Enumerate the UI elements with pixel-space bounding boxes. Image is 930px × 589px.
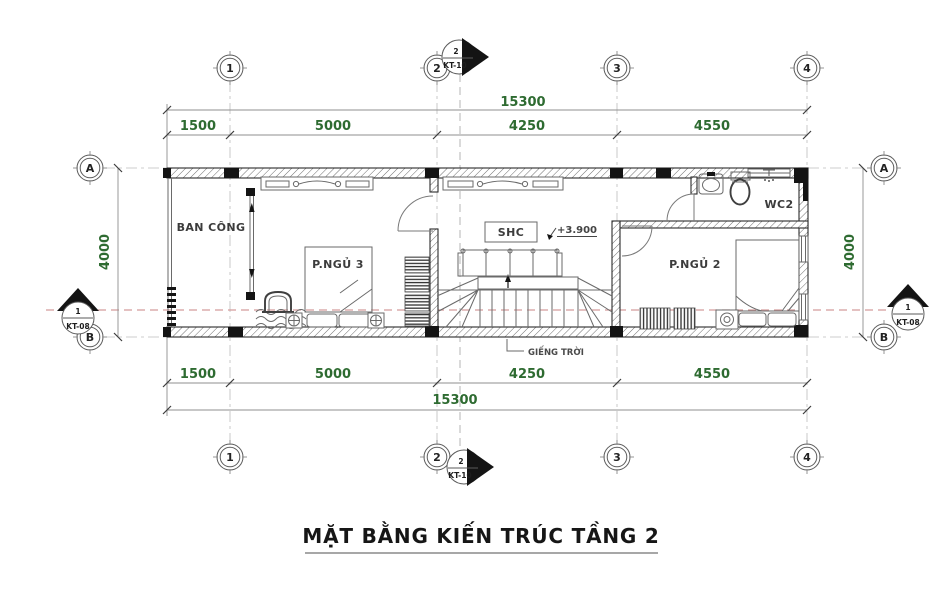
sofa xyxy=(458,249,562,276)
floor-plan-sheet: 15300 1500 5000 4250 4550 1500 5000 4250… xyxy=(0,0,930,589)
grid-col-3-top: 3 xyxy=(613,62,621,75)
kt10-bottom-number: 2 xyxy=(458,457,463,466)
dim-bot-seg-4250: 4250 xyxy=(509,367,545,382)
label-skylight: GIẾNG TRỜI xyxy=(528,345,584,358)
grid-col-2-top: 2 xyxy=(433,62,441,75)
dimension-lines: 15300 1500 5000 4250 4550 1500 5000 4250… xyxy=(98,95,867,416)
section-marker-kt10-bottom: 2 KT-10 xyxy=(447,448,494,486)
kt08-right-number: 1 xyxy=(905,303,910,312)
dim-top-seg-5000: 5000 xyxy=(315,119,351,134)
window-shc xyxy=(443,177,563,190)
kt08-left-number: 1 xyxy=(75,307,80,316)
page-title: MẶT BẰNG KIẾN TRÚC TẦNG 2 xyxy=(302,522,659,548)
grid-col-1-bottom: 1 xyxy=(226,451,234,464)
grid-row-a-right: A xyxy=(880,162,889,175)
floor-drain xyxy=(286,313,302,328)
dim-bot-seg-4550: 4550 xyxy=(694,367,730,382)
floor-drain xyxy=(368,313,384,328)
balcony xyxy=(167,178,255,327)
drawing-title-block: MẶT BẰNG KIẾN TRÚC TẦNG 2 xyxy=(302,522,659,553)
stairs xyxy=(437,274,612,327)
grid-col-2-bottom: 2 xyxy=(433,451,441,464)
dim-right-height: 4000 xyxy=(843,234,858,270)
washing-machine xyxy=(716,310,738,329)
toilet-bedroom3 xyxy=(262,292,294,312)
window-bedroom3 xyxy=(261,177,373,190)
furniture-bedroom2 xyxy=(640,240,799,329)
door-bedroom3 xyxy=(398,196,433,231)
dim-bot-seg-5000: 5000 xyxy=(315,367,351,382)
kt10-bottom-code: KT-10 xyxy=(448,471,471,480)
label-balcony: BAN CÔNG xyxy=(177,221,246,234)
label-wc2: WC2 xyxy=(764,198,793,211)
dim-left-height: 4000 xyxy=(98,234,113,270)
label-bedroom3: P.NGỦ 3 xyxy=(312,257,364,271)
grid-bubbles: 1 2 3 4 1 2 3 4 A B A B xyxy=(73,51,901,474)
dim-top-total: 15300 xyxy=(500,95,545,110)
grid-row-b-left: B xyxy=(86,331,94,344)
skylight-leader: GIẾNG TRỜI xyxy=(507,339,584,358)
wardrobe-bedroom2 xyxy=(640,308,670,329)
dim-top-seg-4250: 4250 xyxy=(509,119,545,134)
floor-plan-drawing: 15300 1500 5000 4250 4550 1500 5000 4250… xyxy=(0,0,930,589)
label-bedroom2: P.NGỦ 2 xyxy=(669,257,721,271)
grid-row-b-right: B xyxy=(880,331,888,344)
kt08-left-code: KT-08 xyxy=(66,322,89,331)
grid-col-3-bottom: 3 xyxy=(613,451,621,464)
section-marker-kt08-right: 1 KT-08 xyxy=(887,284,929,330)
kt10-top-number: 2 xyxy=(453,47,458,56)
dim-bot-seg-1500: 1500 xyxy=(180,367,216,382)
label-level: +3.900 xyxy=(557,225,597,236)
bed-bedroom3 xyxy=(305,247,372,312)
grid-col-4-bottom: 4 xyxy=(803,451,811,464)
kt10-top-code: KT-10 xyxy=(443,61,466,70)
dim-top-seg-4550: 4550 xyxy=(694,119,730,134)
wardrobe-bedroom3 xyxy=(405,257,429,273)
door-bedroom2 xyxy=(622,226,652,256)
dim-bot-total: 15300 xyxy=(432,393,477,408)
door-wc2 xyxy=(667,194,694,221)
grid-col-4-top: 4 xyxy=(803,62,811,75)
section-marker-kt10-top: 2 KT-10 xyxy=(442,38,489,76)
windows xyxy=(261,169,808,320)
grid-col-1-top: 1 xyxy=(226,62,234,75)
grid-row-a-left: A xyxy=(86,162,95,175)
dim-top-seg-1500: 1500 xyxy=(180,119,216,134)
kt08-right-code: KT-08 xyxy=(896,318,919,327)
label-shc: SHC xyxy=(498,226,524,239)
